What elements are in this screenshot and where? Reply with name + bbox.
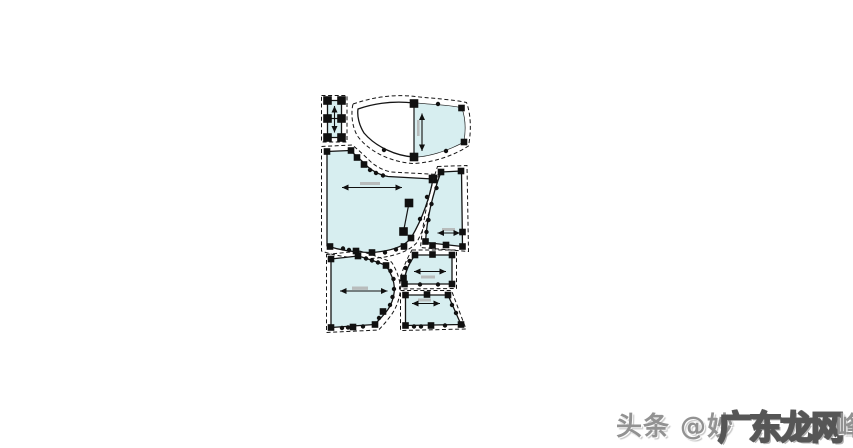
control-node-square[interactable]	[410, 153, 419, 162]
piece-outline[interactable]	[404, 255, 452, 284]
watermark: 头条 @妙广东龙网峰	[616, 401, 853, 448]
control-node-dot[interactable]	[394, 247, 398, 251]
control-node-square[interactable]	[408, 235, 415, 242]
control-node-square[interactable]	[354, 154, 361, 161]
control-node-square[interactable]	[459, 229, 466, 236]
control-node-square[interactable]	[400, 275, 407, 282]
control-node-dot[interactable]	[383, 250, 387, 254]
control-node-square[interactable]	[429, 251, 436, 258]
control-node-dot[interactable]	[388, 303, 392, 307]
control-node-dot[interactable]	[424, 230, 428, 234]
control-node-dot[interactable]	[407, 259, 411, 263]
control-node-square[interactable]	[337, 96, 346, 105]
control-node-square[interactable]	[323, 96, 332, 105]
control-node-dot[interactable]	[377, 316, 381, 320]
control-node-square[interactable]	[412, 252, 419, 259]
control-node-dot[interactable]	[370, 258, 374, 262]
control-node-square[interactable]	[410, 99, 419, 108]
control-node-dot[interactable]	[364, 256, 368, 260]
control-node-square[interactable]	[383, 262, 390, 269]
piece-outline[interactable]	[406, 295, 462, 326]
control-node-dot[interactable]	[443, 323, 447, 327]
watermark-suffix: 峰	[836, 406, 853, 443]
control-node-dot[interactable]	[341, 246, 345, 250]
pattern-canvas: 头条 @妙广东龙网峰	[0, 0, 853, 448]
control-node-dot[interactable]	[382, 148, 386, 152]
dimension-text-smudge	[352, 287, 368, 290]
watermark-overlay-text: 广东龙网	[718, 401, 842, 448]
control-node-square[interactable]	[361, 161, 368, 168]
control-node-dot[interactable]	[436, 282, 440, 286]
control-node-dot[interactable]	[376, 260, 380, 264]
watermark-prefix: 头条 @妙	[616, 406, 734, 443]
control-node-square[interactable]	[461, 139, 468, 146]
dimension-text-smudge	[442, 228, 455, 231]
pattern-piece-small-lower[interactable]	[401, 291, 467, 331]
control-node-square[interactable]	[402, 322, 409, 329]
control-node-square[interactable]	[337, 114, 346, 123]
control-node-dot[interactable]	[361, 324, 365, 328]
control-node-square[interactable]	[405, 199, 414, 208]
control-node-dot[interactable]	[381, 173, 385, 177]
dimension-text-smudge	[417, 120, 420, 136]
pattern-piece-bodice[interactable]	[322, 145, 439, 259]
dimension-text-smudge	[421, 276, 435, 279]
control-node-dot[interactable]	[426, 218, 430, 222]
control-node-dot[interactable]	[412, 324, 416, 328]
control-node-dot[interactable]	[390, 295, 394, 299]
control-node-square[interactable]	[429, 242, 436, 249]
control-node-square[interactable]	[350, 324, 357, 331]
control-node-square[interactable]	[328, 256, 335, 263]
dimension-text-smudge	[360, 182, 380, 185]
control-node-square[interactable]	[399, 227, 408, 236]
control-node-square[interactable]	[328, 324, 335, 331]
control-node-dot[interactable]	[434, 186, 438, 190]
control-node-square[interactable]	[369, 249, 376, 256]
control-node-square[interactable]	[337, 133, 346, 142]
pattern-piece-lower-left[interactable]	[327, 251, 401, 333]
dimension-text-smudge	[418, 299, 431, 302]
control-node-dot[interactable]	[454, 311, 458, 315]
control-node-square[interactable]	[443, 242, 450, 249]
control-node-dot[interactable]	[419, 324, 423, 328]
control-node-square[interactable]	[323, 133, 332, 142]
pattern-piece-yoke[interactable]	[352, 96, 470, 164]
control-node-square[interactable]	[348, 147, 355, 154]
control-node-square[interactable]	[458, 105, 465, 112]
control-node-square[interactable]	[458, 321, 465, 328]
control-node-square[interactable]	[438, 169, 445, 176]
control-node-square[interactable]	[401, 281, 408, 288]
control-node-square[interactable]	[449, 281, 456, 288]
control-node-dot[interactable]	[403, 266, 407, 270]
control-node-dot[interactable]	[388, 269, 392, 273]
control-node-dot[interactable]	[418, 217, 422, 221]
control-node-square[interactable]	[401, 243, 408, 250]
control-node-square[interactable]	[459, 243, 466, 250]
control-node-square[interactable]	[355, 253, 362, 260]
pattern-piece-band[interactable]	[322, 96, 348, 143]
control-node-square[interactable]	[422, 238, 429, 245]
control-node-square[interactable]	[380, 308, 387, 315]
control-node-square[interactable]	[323, 114, 332, 123]
control-node-square[interactable]	[372, 321, 379, 328]
control-node-square[interactable]	[458, 168, 465, 175]
control-node-square[interactable]	[324, 148, 331, 155]
control-node-dot[interactable]	[418, 282, 422, 286]
control-node-dot[interactable]	[368, 168, 372, 172]
control-node-dot[interactable]	[391, 277, 395, 281]
piece-outline[interactable]	[327, 151, 433, 253]
control-node-square[interactable]	[327, 243, 334, 250]
control-node-dot[interactable]	[340, 326, 344, 330]
control-node-dot[interactable]	[392, 287, 396, 291]
control-node-dot[interactable]	[429, 202, 433, 206]
control-node-dot[interactable]	[374, 171, 378, 175]
control-node-square[interactable]	[429, 175, 438, 184]
control-node-dot[interactable]	[347, 248, 351, 252]
pattern-piece-small-upper[interactable]	[400, 250, 457, 289]
control-node-dot[interactable]	[450, 303, 454, 307]
control-node-square[interactable]	[424, 291, 431, 298]
control-node-square[interactable]	[445, 292, 452, 299]
control-node-dot[interactable]	[436, 102, 440, 106]
control-node-dot[interactable]	[444, 149, 448, 153]
control-node-square[interactable]	[428, 322, 435, 329]
pattern-drawing	[0, 0, 853, 448]
control-node-square[interactable]	[449, 252, 456, 259]
control-node-dot[interactable]	[346, 325, 350, 329]
control-node-square[interactable]	[402, 292, 409, 299]
